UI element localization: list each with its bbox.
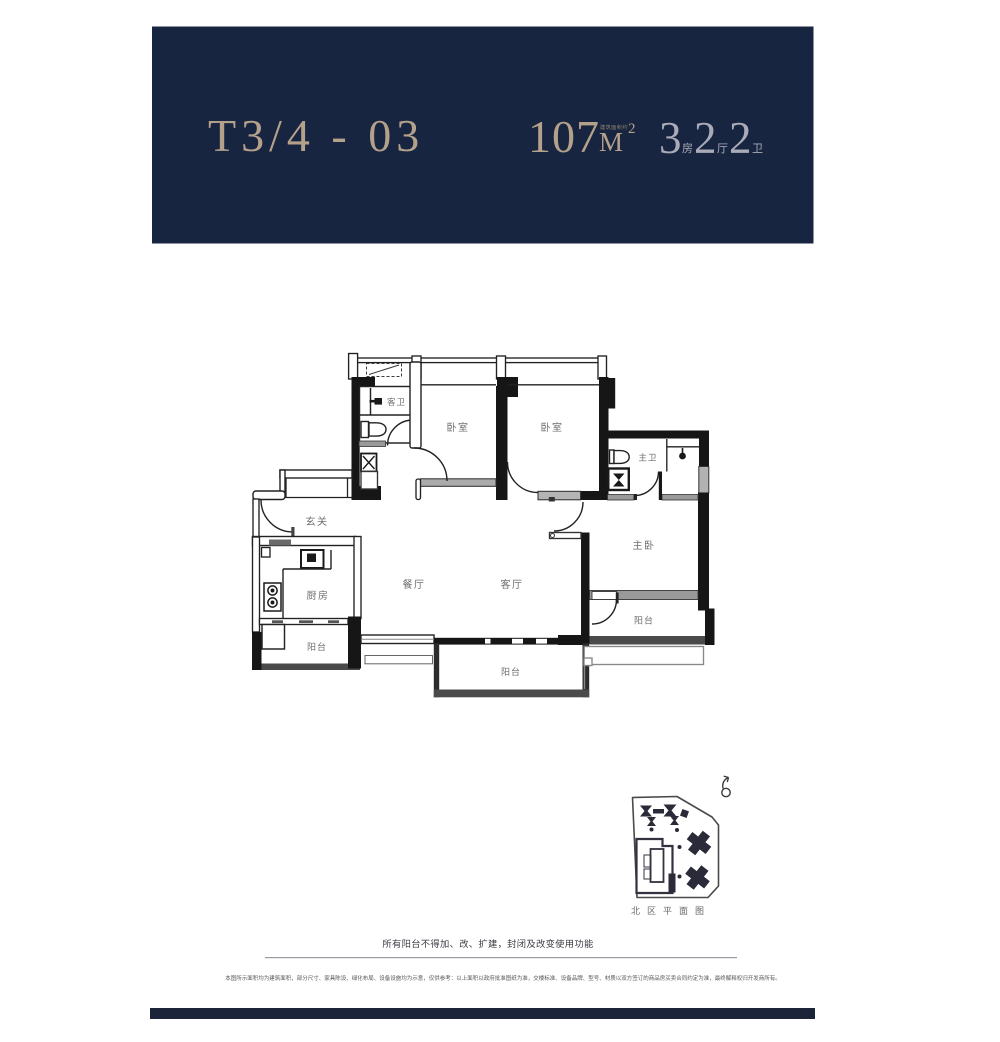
- svg-text:卫: 卫: [752, 143, 763, 155]
- svg-text:卧室: 卧室: [447, 421, 470, 434]
- svg-text:3: 3: [659, 113, 682, 163]
- svg-text:客厅: 客厅: [501, 578, 524, 591]
- svg-text:阳台: 阳台: [307, 641, 327, 652]
- svg-text:厨房: 厨房: [307, 589, 330, 602]
- svg-text:阳台: 阳台: [501, 666, 521, 677]
- svg-text:北区平面图: 北区平面图: [631, 906, 711, 916]
- svg-text:卧室: 卧室: [541, 421, 564, 434]
- svg-text:所有阳台不得加、改、扩建，封闭及改变使用功能: 所有阳台不得加、改、扩建，封闭及改变使用功能: [382, 938, 593, 949]
- svg-text:阳台: 阳台: [634, 615, 654, 626]
- svg-text:餐厅: 餐厅: [403, 578, 426, 591]
- svg-text:玄关: 玄关: [306, 515, 329, 528]
- svg-text:客卫: 客卫: [387, 397, 406, 407]
- svg-text:2: 2: [628, 121, 636, 137]
- svg-text:房: 房: [682, 142, 693, 155]
- svg-text:本图所示面积均为建筑面积，部分尺寸、家具陈设、绿化布局、设备: 本图所示面积均为建筑面积，部分尺寸、家具陈设、绿化布局、设备设施均为示意，仅供参…: [225, 974, 781, 982]
- svg-text:M: M: [599, 127, 623, 157]
- svg-text:厅: 厅: [717, 143, 728, 155]
- svg-text:107: 107: [528, 111, 600, 162]
- svg-text:2: 2: [694, 113, 717, 163]
- svg-text:2: 2: [729, 113, 752, 163]
- svg-text:主卫: 主卫: [638, 453, 657, 463]
- svg-text:主卧: 主卧: [633, 539, 656, 552]
- svg-text:T3/4 - 03: T3/4 - 03: [208, 110, 424, 161]
